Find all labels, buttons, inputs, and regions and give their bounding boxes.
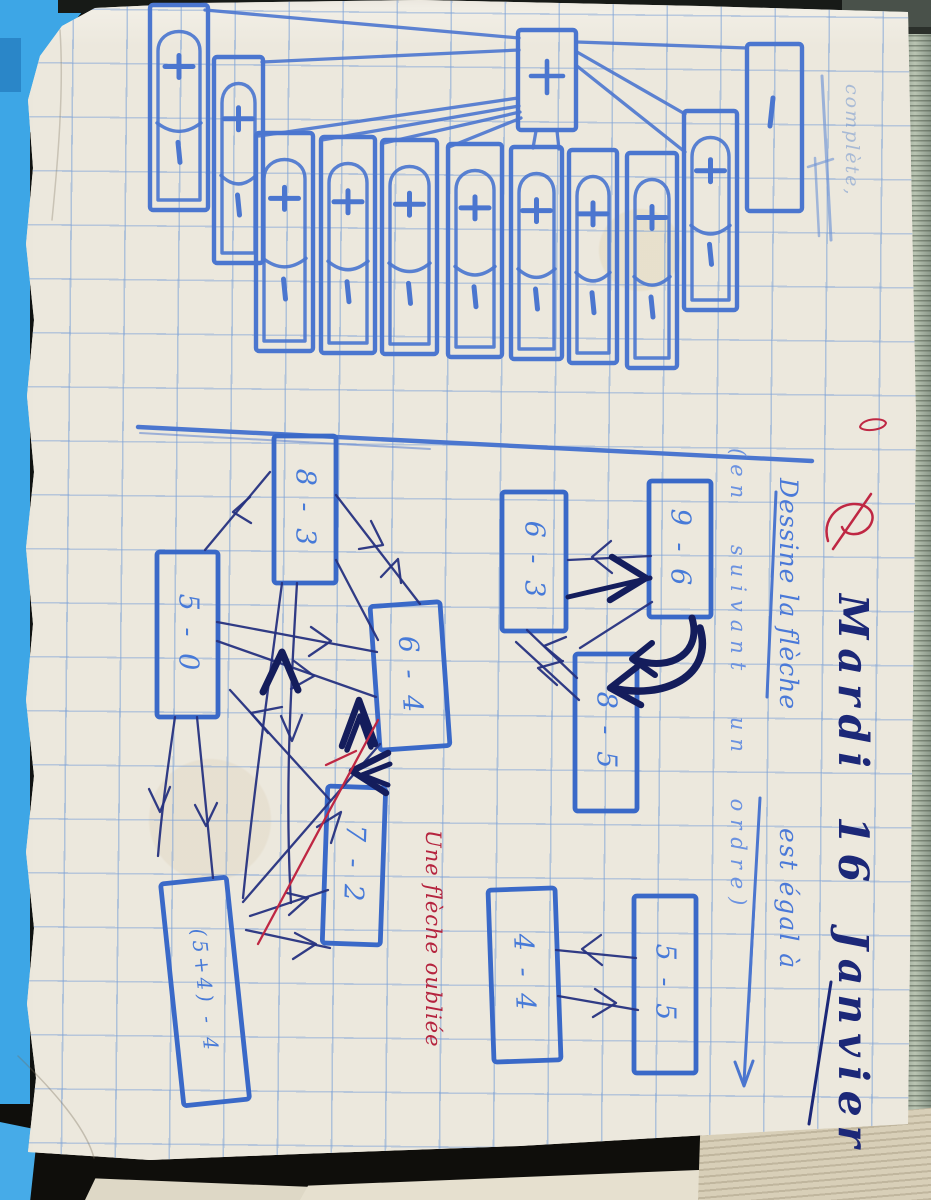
instruction-line-2: est égal à: [752, 828, 802, 1038]
pen-arrow: [293, 933, 316, 959]
connector-line: [557, 131, 559, 149]
pen-arrow: [381, 559, 401, 583]
pen-arrow: [556, 950, 636, 958]
card-arc: [634, 277, 670, 286]
bold-arrow: [612, 628, 702, 691]
expression-label: 4 - 4: [507, 933, 541, 1015]
pen-arrow: [217, 622, 377, 652]
minus-icon: [178, 142, 180, 162]
pen-arrow: [246, 930, 330, 948]
card-arc: [221, 175, 256, 184]
red-teacher-mark: [827, 504, 873, 541]
pen-arrow: [205, 472, 270, 550]
card-arc: [576, 272, 610, 281]
margin-rule: [815, 158, 819, 236]
minus-icon: [409, 283, 411, 303]
bold-arrow: [636, 618, 694, 664]
pen-arrow: [197, 717, 213, 878]
pen-arrow: [580, 602, 652, 648]
card-arc: [518, 269, 555, 278]
pen-arrow: [149, 787, 170, 812]
pen-arrow: [233, 497, 251, 523]
pen-arrow: [281, 715, 302, 741]
pen-arrow: [558, 996, 638, 1010]
card-arc: [389, 263, 430, 272]
scanned-notebook-page: complète, Mardi 16 Janvier Dessine la fl…: [0, 0, 931, 1200]
instruction-line-1: Dessine la flèche: [750, 478, 802, 718]
pen-arrow: [582, 935, 602, 965]
minus-icon: [592, 293, 594, 313]
expression-label: 8 - 3: [290, 469, 321, 550]
pen-arrow: [288, 583, 297, 903]
red-oval-mark: [860, 419, 886, 430]
pen-arrow: [336, 495, 420, 604]
pen-arrow: [158, 717, 175, 856]
card-arc: [263, 258, 306, 267]
expression-label: 9 - 6: [665, 509, 696, 590]
red-teacher-mark: [833, 494, 871, 549]
expression-label: 8 - 5: [591, 692, 622, 773]
card-arc: [157, 123, 201, 132]
connector-line: [577, 66, 685, 152]
minus-icon: [651, 297, 653, 317]
minus-icon: [536, 289, 538, 309]
connector-line: [259, 98, 518, 136]
card-arc: [455, 266, 495, 275]
faint-header-word: complète,: [820, 84, 862, 264]
card-arc: [328, 261, 368, 270]
minus-icon: [284, 279, 286, 299]
connector-line: [205, 10, 519, 38]
red-annotation: Une flèche oubliée: [399, 830, 445, 1105]
minus-icon: [770, 98, 773, 126]
minus-card: [747, 44, 802, 211]
connector-line: [577, 52, 685, 114]
expression-label: 5 - 0: [173, 594, 204, 675]
red-arrow-tick: [326, 751, 356, 765]
pen-arrow: [359, 521, 383, 549]
minus-icon: [710, 244, 712, 264]
minus-icon: [347, 282, 349, 302]
expression-label: 7 - 2: [337, 824, 371, 906]
connector-line: [577, 42, 747, 48]
expression-label: 5 - 5: [650, 944, 681, 1025]
card-arc: [691, 225, 730, 234]
expression-label: 6 - 3: [519, 521, 550, 602]
instruction-parenthetical: (en suivant un ordre): [698, 448, 750, 1028]
ink-stroke: [18, 1056, 94, 1158]
minus-icon: [238, 195, 240, 215]
minus-icon: [474, 287, 476, 307]
pen-arrow: [336, 560, 378, 640]
expression-label: 6 - 4: [392, 635, 429, 718]
bold-arrowhead: [610, 557, 646, 600]
connector-line: [262, 50, 519, 62]
ink-stroke: [52, 30, 61, 220]
